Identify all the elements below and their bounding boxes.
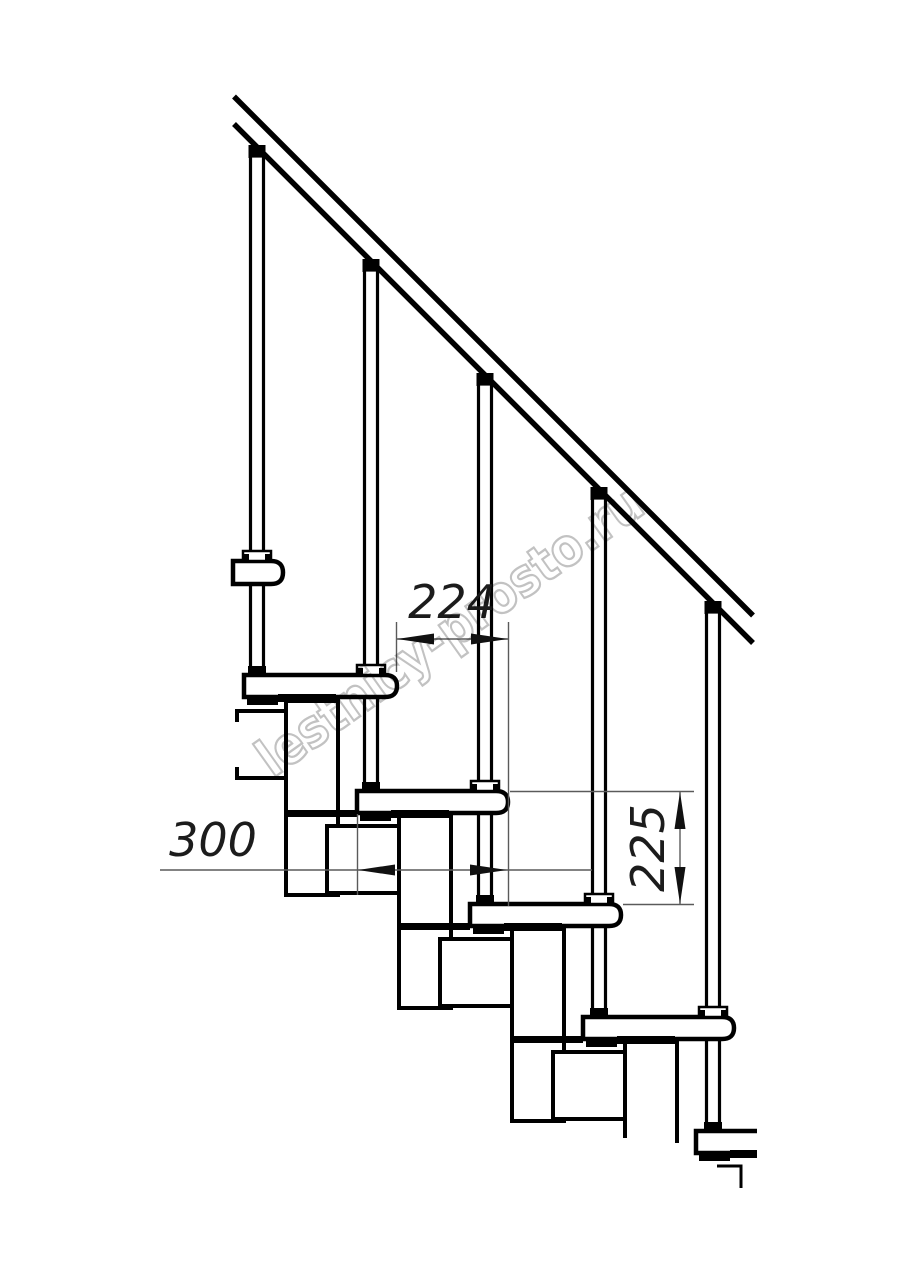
tread-mount-plate bbox=[586, 1038, 617, 1047]
staircase-technical-drawing: 224 300 225 lestnicy-prosto.ru bbox=[0, 0, 914, 1280]
tread-mount-plate bbox=[247, 696, 278, 705]
baluster-base-mount bbox=[362, 782, 380, 791]
tread-mount-plate bbox=[360, 812, 391, 821]
baluster-base-mount bbox=[248, 666, 266, 675]
baluster-base-mount bbox=[704, 1122, 722, 1131]
tread-mount-plate bbox=[699, 1152, 730, 1161]
tread-6-partial bbox=[696, 1131, 757, 1153]
tread-3 bbox=[357, 791, 508, 813]
tread-mount-plate bbox=[473, 925, 504, 934]
tread-mount-bar bbox=[391, 810, 449, 818]
module-joint-plate bbox=[285, 810, 357, 817]
tread-1-partial bbox=[233, 561, 283, 584]
module-joint-plate bbox=[398, 923, 470, 930]
tread-5 bbox=[583, 1017, 734, 1039]
stringer-module-link-3 bbox=[553, 1052, 629, 1119]
baluster-base-mount bbox=[590, 1008, 608, 1017]
tread-4 bbox=[470, 904, 621, 926]
tread-mount-bar bbox=[730, 1150, 757, 1158]
baluster-base-mount bbox=[476, 895, 494, 904]
tread-mount-bar bbox=[504, 923, 562, 931]
stringer-module-link-2 bbox=[440, 939, 516, 1006]
dimension-value-225: 225 bbox=[621, 804, 675, 892]
baluster-4 bbox=[593, 498, 606, 1019]
baluster-5 bbox=[707, 612, 720, 1133]
stringer-module-link-1 bbox=[327, 826, 403, 893]
module-joint-plate bbox=[511, 1036, 583, 1043]
baluster-1 bbox=[251, 156, 264, 677]
stringer-module-vertical-4-broken bbox=[625, 1040, 677, 1143]
dimension-value-300: 300 bbox=[169, 813, 257, 867]
staircase-drawing-page: 224 300 225 lestnicy-prosto.ru bbox=[0, 0, 914, 1280]
tread-mount-bar bbox=[617, 1036, 675, 1044]
